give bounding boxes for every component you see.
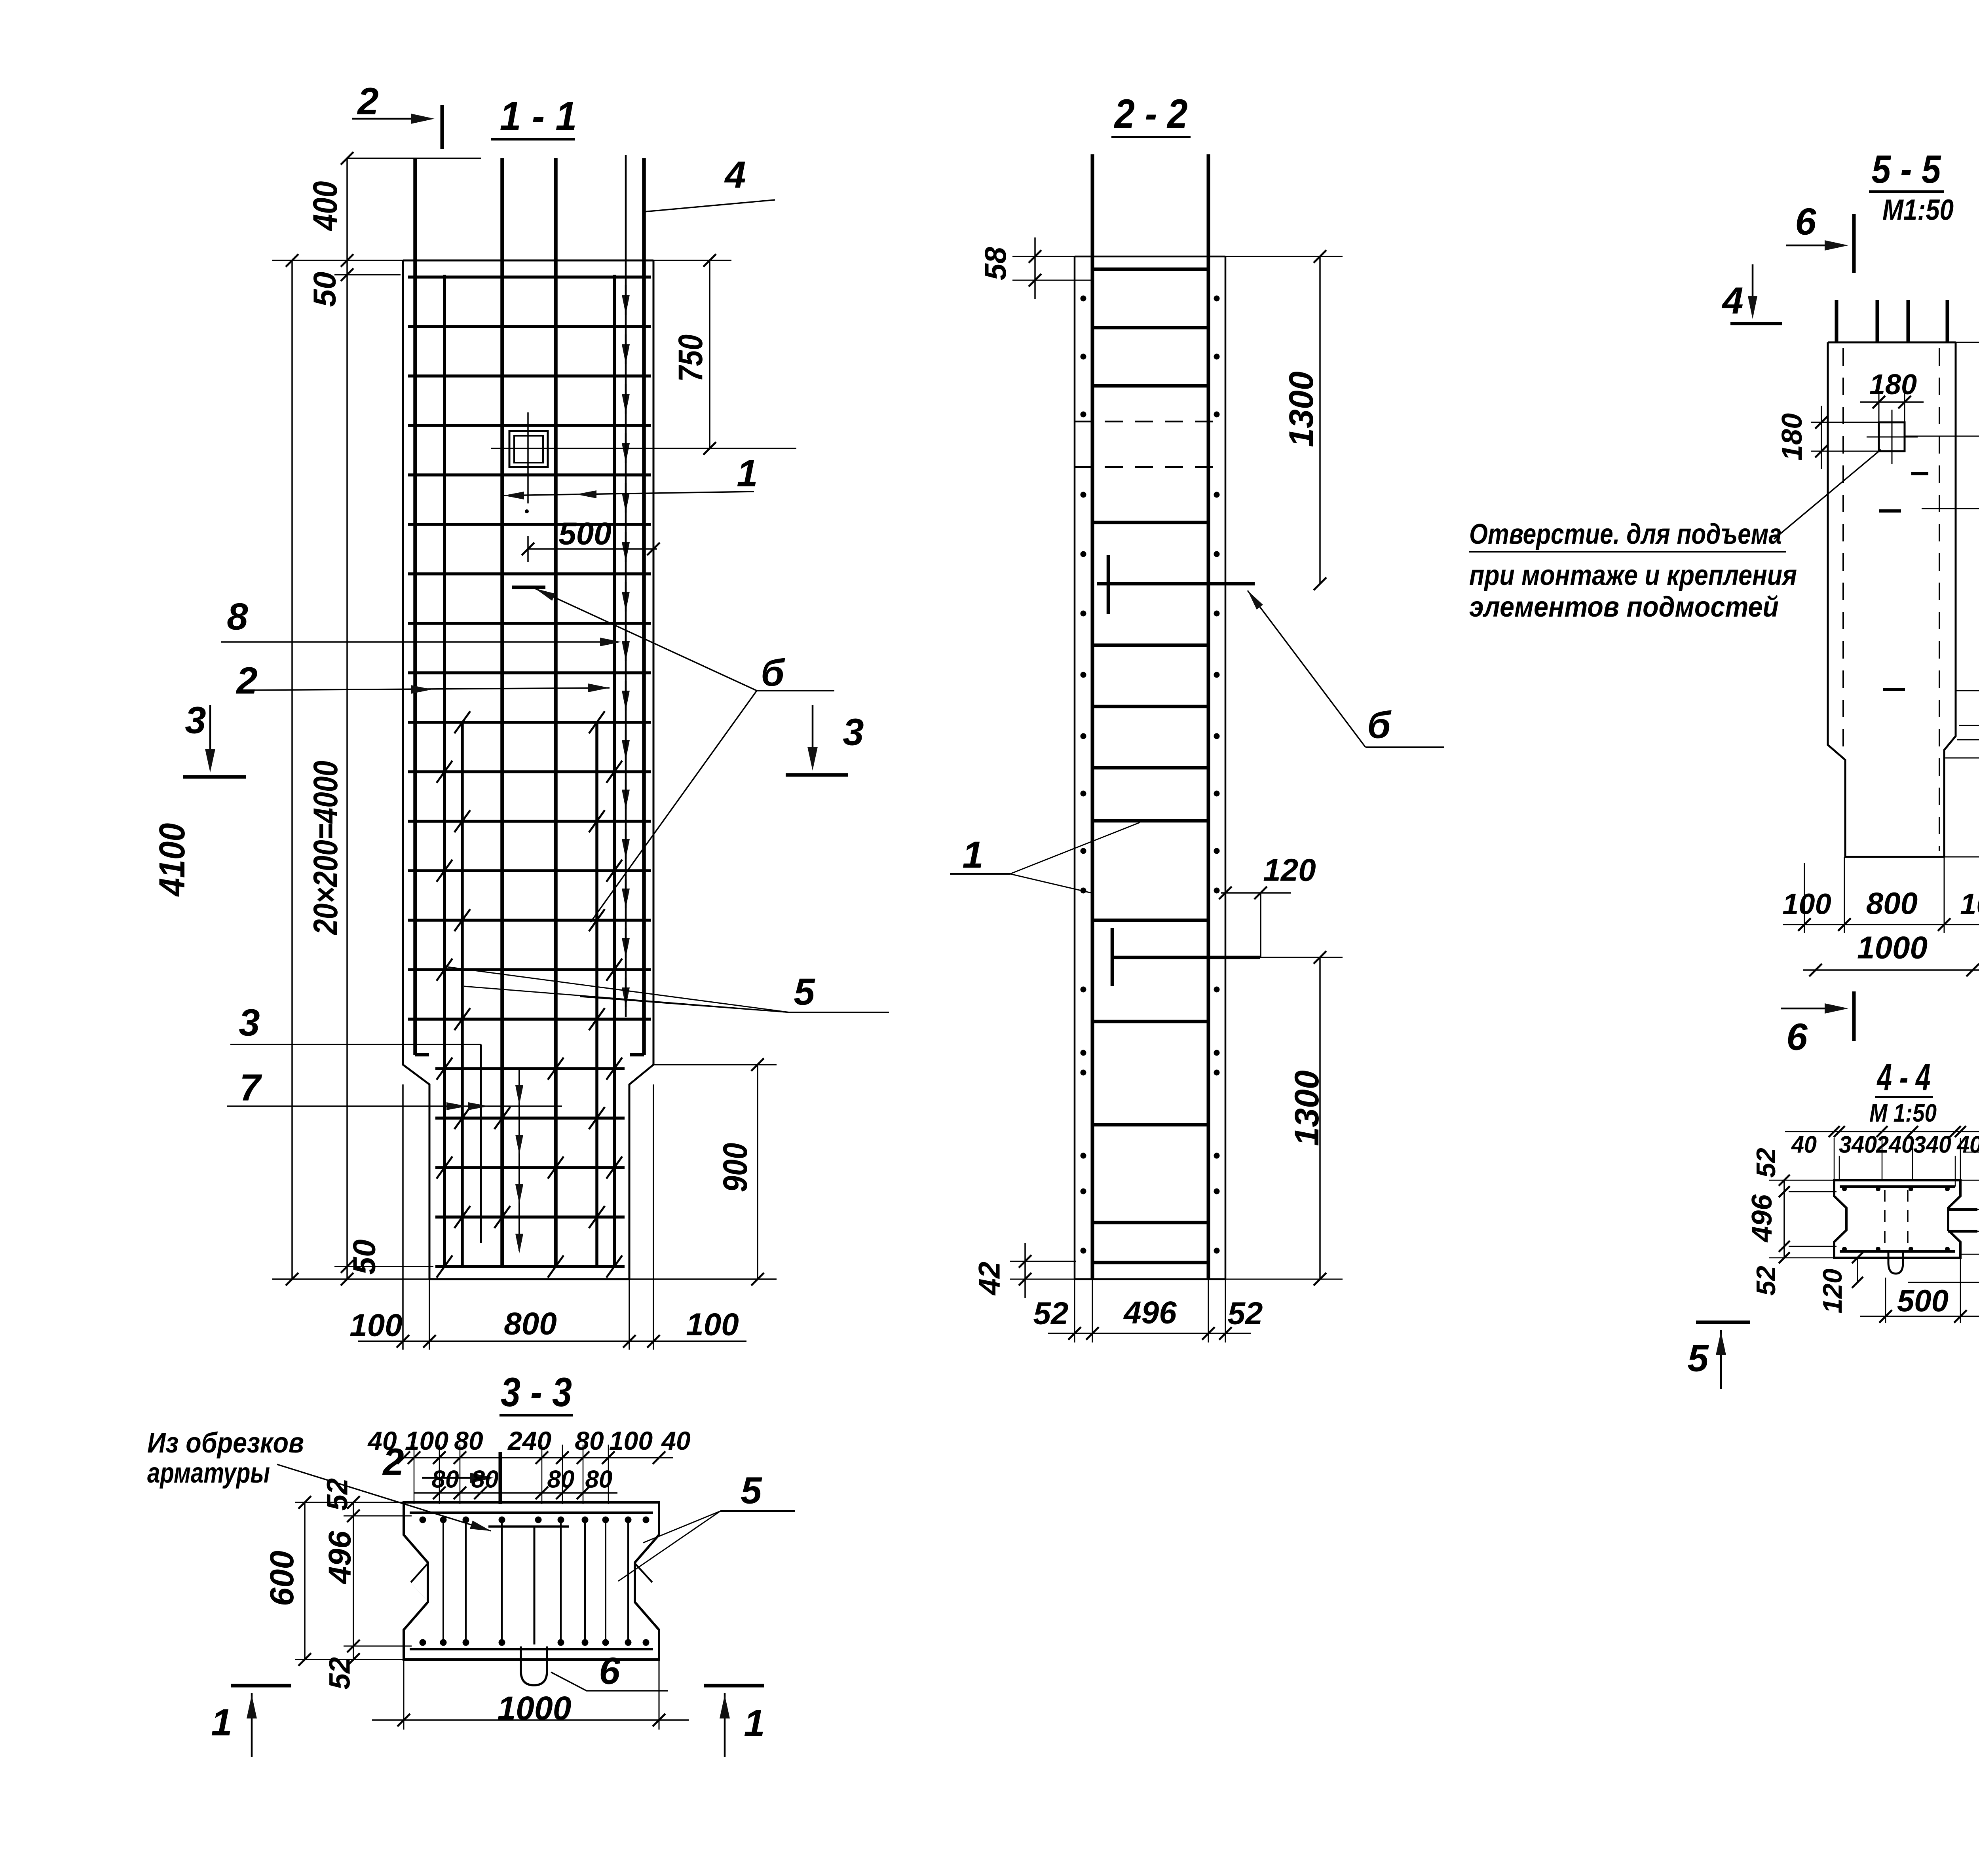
svg-text:4 - 4: 4 - 4 — [1876, 1056, 1930, 1099]
svg-text:500: 500 — [1897, 1283, 1949, 1318]
svg-text:50: 50 — [307, 272, 342, 307]
svg-text:1300: 1300 — [1288, 1070, 1326, 1146]
svg-text:750: 750 — [672, 334, 710, 382]
svg-text:100: 100 — [405, 1426, 448, 1455]
svg-text:20×200=4000: 20×200=4000 — [307, 761, 345, 936]
svg-text:100: 100 — [1974, 689, 1979, 736]
svg-text:58: 58 — [979, 247, 1013, 280]
svg-text:50: 50 — [347, 1240, 382, 1275]
svg-text:при монтаже и крепления: при монтаже и крепления — [1469, 560, 1797, 591]
svg-text:6: 6 — [1795, 201, 1816, 243]
svg-text:800: 800 — [504, 1306, 556, 1341]
svg-text:100: 100 — [1782, 888, 1831, 921]
svg-text:2: 2 — [357, 80, 378, 123]
svg-text:80: 80 — [471, 1466, 499, 1493]
svg-text:180: 180 — [1776, 413, 1808, 461]
svg-text:52: 52 — [321, 1478, 354, 1511]
svg-text:1: 1 — [962, 834, 983, 876]
svg-text:400: 400 — [306, 181, 344, 232]
svg-text:4: 4 — [724, 154, 746, 196]
svg-text:80: 80 — [575, 1426, 604, 1455]
svg-text:40: 40 — [1791, 1132, 1817, 1158]
svg-text:1000: 1000 — [498, 1690, 572, 1727]
svg-text:8: 8 — [227, 596, 248, 638]
svg-text:800: 800 — [1977, 777, 1979, 830]
svg-text:240: 240 — [1876, 1132, 1914, 1158]
svg-text:240: 240 — [507, 1426, 551, 1455]
svg-text:2 - 2: 2 - 2 — [1114, 91, 1188, 137]
svg-text:496: 496 — [322, 1531, 357, 1585]
svg-text:80: 80 — [432, 1466, 459, 1493]
svg-text:2: 2 — [236, 660, 257, 702]
svg-text:5: 5 — [741, 1470, 762, 1512]
svg-text:80: 80 — [454, 1426, 483, 1455]
svg-text:80: 80 — [547, 1466, 575, 1493]
svg-text:52: 52 — [1228, 1296, 1263, 1331]
svg-text:100: 100 — [1960, 888, 1979, 921]
svg-text:120: 120 — [1263, 853, 1316, 888]
svg-text:600: 600 — [263, 1551, 300, 1606]
svg-text:6: 6 — [1786, 1016, 1808, 1058]
svg-text:100: 100 — [686, 1307, 739, 1342]
svg-text:4: 4 — [1721, 280, 1743, 322]
svg-text:Из обрезков: Из обрезков — [147, 1427, 304, 1459]
svg-text:120: 120 — [1818, 1268, 1848, 1314]
svg-text:5 - 5: 5 - 5 — [1872, 147, 1941, 192]
svg-text:3: 3 — [843, 711, 864, 754]
svg-text:5: 5 — [1687, 1337, 1709, 1380]
svg-text:100: 100 — [609, 1426, 653, 1455]
svg-text:340: 340 — [1913, 1132, 1951, 1158]
svg-text:б: б — [761, 652, 785, 694]
svg-text:900: 900 — [716, 1143, 754, 1192]
svg-text:180: 180 — [1869, 369, 1917, 401]
svg-text:1: 1 — [737, 452, 758, 495]
svg-text:52: 52 — [1751, 1266, 1781, 1296]
svg-text:7: 7 — [239, 1067, 262, 1109]
svg-text:6: 6 — [599, 1650, 620, 1692]
svg-text:52: 52 — [1751, 1148, 1781, 1178]
svg-text:496: 496 — [1746, 1194, 1778, 1243]
svg-text:1300: 1300 — [1282, 371, 1320, 447]
svg-text:52: 52 — [1033, 1296, 1069, 1331]
svg-text:40: 40 — [367, 1426, 397, 1455]
svg-text:500: 500 — [558, 516, 611, 551]
svg-text:3 - 3: 3 - 3 — [501, 1369, 572, 1415]
svg-text:40: 40 — [1956, 1132, 1979, 1158]
svg-text:1000: 1000 — [1857, 930, 1928, 965]
svg-text:М1:50: М1:50 — [1882, 194, 1954, 226]
svg-text:Отверстие. для подъема: Отверстие. для подъема — [1469, 518, 1782, 550]
svg-text:5: 5 — [794, 971, 815, 1013]
svg-text:М 1:50: М 1:50 — [1869, 1099, 1937, 1127]
svg-text:4100: 4100 — [152, 823, 192, 897]
svg-text:40: 40 — [661, 1426, 691, 1455]
svg-text:1 - 1: 1 - 1 — [500, 93, 577, 139]
svg-text:42: 42 — [973, 1262, 1007, 1296]
svg-text:элементов подмостей: элементов подмостей — [1469, 591, 1779, 623]
svg-text:52: 52 — [323, 1657, 356, 1690]
svg-text:3: 3 — [185, 699, 206, 742]
svg-text:1: 1 — [744, 1702, 765, 1745]
svg-text:3: 3 — [239, 1002, 260, 1044]
svg-text:340: 340 — [1839, 1132, 1877, 1158]
svg-text:1: 1 — [211, 1701, 232, 1744]
svg-text:б: б — [1367, 704, 1392, 746]
svg-text:800: 800 — [1866, 886, 1918, 921]
svg-text:арматуры: арматуры — [147, 1457, 270, 1489]
svg-text:496: 496 — [1123, 1295, 1177, 1330]
svg-text:100: 100 — [349, 1308, 402, 1343]
svg-text:750: 750 — [1973, 363, 1979, 416]
